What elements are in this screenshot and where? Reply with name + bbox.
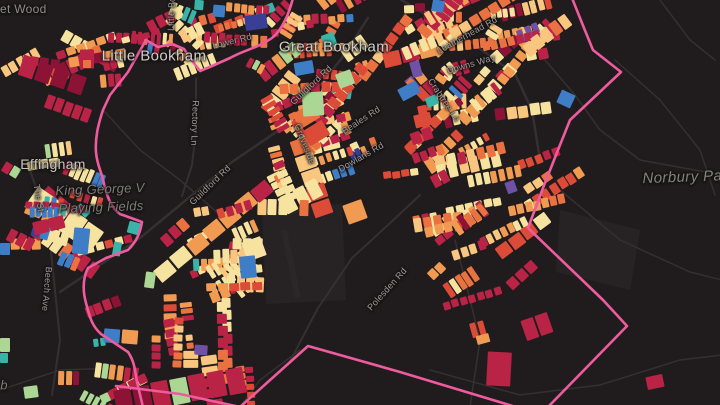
boundary-path (84, 0, 293, 405)
boundary-path (116, 346, 516, 405)
area-boundary (0, 0, 720, 405)
map-canvas[interactable]: Barnet WoodLittle BookhamGreat BookhamEf… (0, 0, 720, 405)
boundary-path (528, 0, 627, 405)
